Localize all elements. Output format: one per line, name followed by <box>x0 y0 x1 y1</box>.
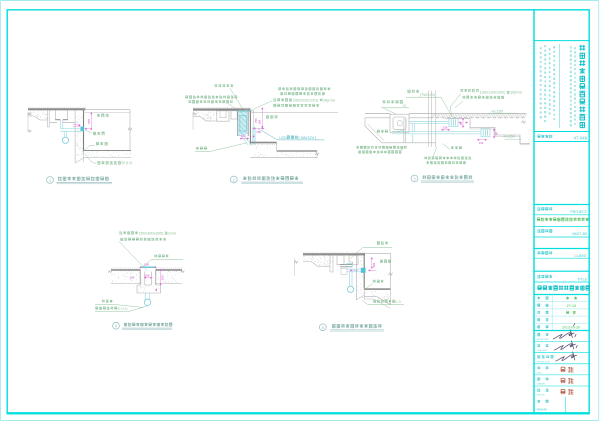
svg-text:APPROVED: APPROVED <box>537 338 550 341</box>
svg-text:150: 150 <box>144 262 149 266</box>
svg-text:ZY-18: ZY-18 <box>567 304 576 308</box>
svg-text:*2: *2 <box>403 104 406 108</box>
svg-text:150: 150 <box>443 125 448 129</box>
svg-text:(7W/12V): (7W/12V) <box>420 93 435 97</box>
svg-text:)mm: )mm <box>168 230 176 235</box>
svg-text:PROOF.: PROOF. <box>537 395 546 397</box>
svg-text:300: 300 <box>372 262 376 267</box>
svg-text:250x300x300(: 250x300x300( <box>139 230 164 235</box>
svg-text:CLIENT: CLIENT <box>574 254 588 258</box>
svg-text:+0.650: +0.650 <box>503 134 515 138</box>
svg-text:150: 150 <box>144 274 149 278</box>
svg-text:PROJECT M.: PROJECT M. <box>537 361 551 363</box>
svg-text:)K]mm: )K]mm <box>323 97 335 102</box>
svg-text:(1:2): (1:2) <box>126 161 133 165</box>
svg-text:REMARK: REMARK <box>537 409 548 412</box>
svg-text:TITLE: TITLE <box>577 278 587 282</box>
svg-text:20: 20 <box>122 161 126 165</box>
svg-text:(1:2): (1:2) <box>395 299 401 303</box>
svg-text:150: 150 <box>258 119 262 124</box>
svg-text:47-049: 47-049 <box>574 135 588 140</box>
svg-text:[ 6W/12V ]: [ 6W/12V ] <box>299 136 317 140</box>
svg-text:150: 150 <box>256 130 261 134</box>
svg-text:(1:2): (1:2) <box>121 306 127 310</box>
svg-text:150: 150 <box>87 119 91 124</box>
svg-text:LED: LED <box>279 136 287 140</box>
svg-text:150: 150 <box>479 141 484 145</box>
svg-text:2013-09-30: 2013-09-30 <box>562 325 580 329</box>
svg-text:20: 20 <box>117 306 121 310</box>
svg-text:150: 150 <box>241 134 246 138</box>
svg-text:DES.: DES. <box>537 372 542 374</box>
svg-text:200x200x120(: 200x200x120( <box>293 97 319 102</box>
svg-text:150: 150 <box>129 276 134 280</box>
svg-text:)K]mm: )K]mm <box>510 90 522 95</box>
svg-text:130x130x100(: 130x130x100( <box>480 90 506 95</box>
svg-text:6607-80: 6607-80 <box>572 231 587 236</box>
svg-text:DRAWN: DRAWN <box>537 383 546 386</box>
svg-text:150: 150 <box>161 275 165 280</box>
svg-text:PROJECT: PROJECT <box>570 210 588 214</box>
svg-text:CHECKED: CHECKED <box>537 350 548 352</box>
